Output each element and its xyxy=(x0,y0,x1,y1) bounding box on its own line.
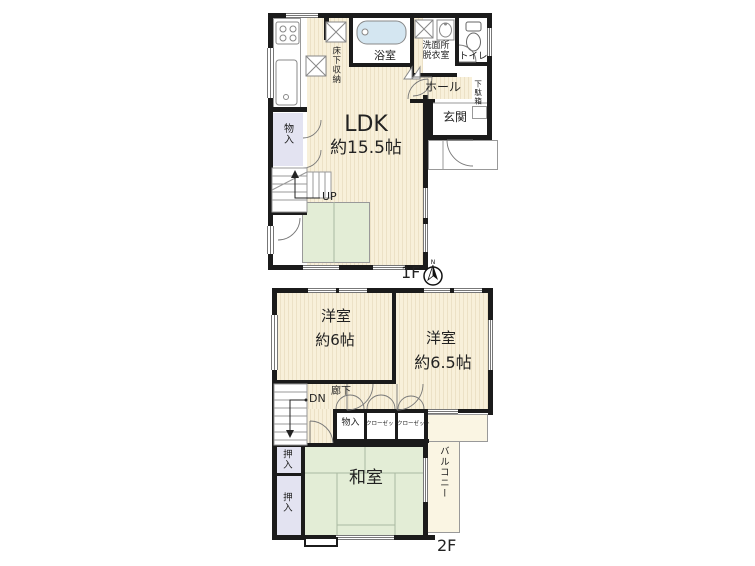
label-toilet: トイレ xyxy=(459,52,487,63)
label-balcony: バルコニー xyxy=(437,446,448,499)
floor-marker-1f: 1F xyxy=(401,264,420,282)
label-ldk-size: 約15.5帖 xyxy=(314,139,418,159)
label-storage-1f: 物入 xyxy=(281,123,293,145)
label-storage-2f: 物入 xyxy=(336,418,365,428)
label-western6-size: 約6帖 xyxy=(301,332,369,349)
toilet-icon xyxy=(466,22,481,51)
label-washitsu: 和室 xyxy=(336,469,396,489)
label-ldk: LDK xyxy=(326,112,406,137)
label-closet-2: クローゼット xyxy=(397,421,425,427)
compass-n-label: N xyxy=(431,259,436,266)
label-corridor: 廊下 xyxy=(331,386,351,398)
label-up: UP xyxy=(322,191,337,204)
label-oshiire-2: 押入 xyxy=(280,492,291,513)
label-oshiire-1: 押入 xyxy=(280,449,291,470)
label-bath: 浴室 xyxy=(365,50,405,63)
label-underfloor-storage: 床下収納 xyxy=(330,46,340,84)
bathtub-icon xyxy=(357,21,406,44)
label-hall: ホール xyxy=(417,81,469,95)
label-dn: DN xyxy=(309,393,326,406)
floor-plan: N 床下収納 浴室 洗面所 脱衣室 トイレ ホール 下駄箱 玄関 物入 LDK … xyxy=(0,0,755,566)
label-western6: 洋室 xyxy=(306,308,366,325)
compass-icon: N xyxy=(424,259,442,285)
washbasin-icon xyxy=(437,20,454,40)
label-washroom: 洗面所 脱衣室 xyxy=(413,41,459,62)
label-closet-1: クローゼット xyxy=(366,421,395,427)
label-washroom-line2: 脱衣室 xyxy=(422,51,449,61)
floor-marker-2f: 2F xyxy=(437,537,456,555)
door-arcs-2f xyxy=(310,384,424,443)
washing-machine-icon xyxy=(415,20,433,38)
kitchen-sink-icon xyxy=(276,60,297,105)
label-western65-size: 約6.5帖 xyxy=(401,354,485,372)
stove-icon xyxy=(276,22,299,44)
label-entrance: 玄関 xyxy=(429,111,481,125)
label-washroom-line1: 洗面所 xyxy=(422,41,449,51)
label-shoe-box: 下駄箱 xyxy=(473,80,482,106)
label-western65: 洋室 xyxy=(411,330,471,347)
